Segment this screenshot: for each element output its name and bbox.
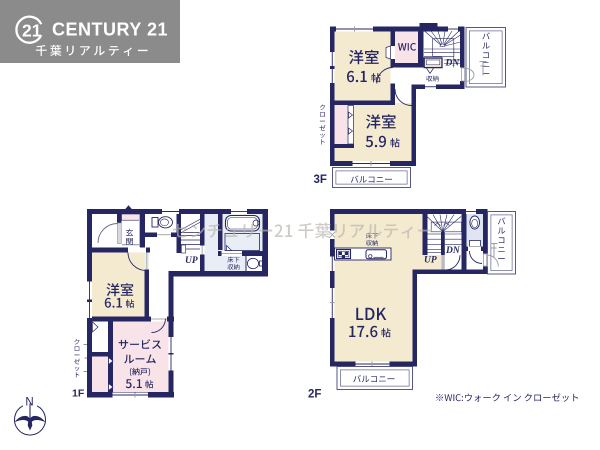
- svg-text:UP: UP: [424, 256, 437, 266]
- svg-text:1F: 1F: [72, 388, 85, 400]
- svg-text:3F: 3F: [314, 174, 327, 186]
- svg-text:CENTURY 21: CENTURY 21: [52, 20, 168, 40]
- svg-text:2F: 2F: [308, 389, 321, 401]
- svg-text:N: N: [25, 397, 33, 409]
- svg-text:DN: DN: [445, 246, 461, 256]
- svg-text:21: 21: [22, 21, 42, 41]
- svg-text:DN: DN: [445, 59, 461, 69]
- svg-text:UP: UP: [185, 256, 198, 266]
